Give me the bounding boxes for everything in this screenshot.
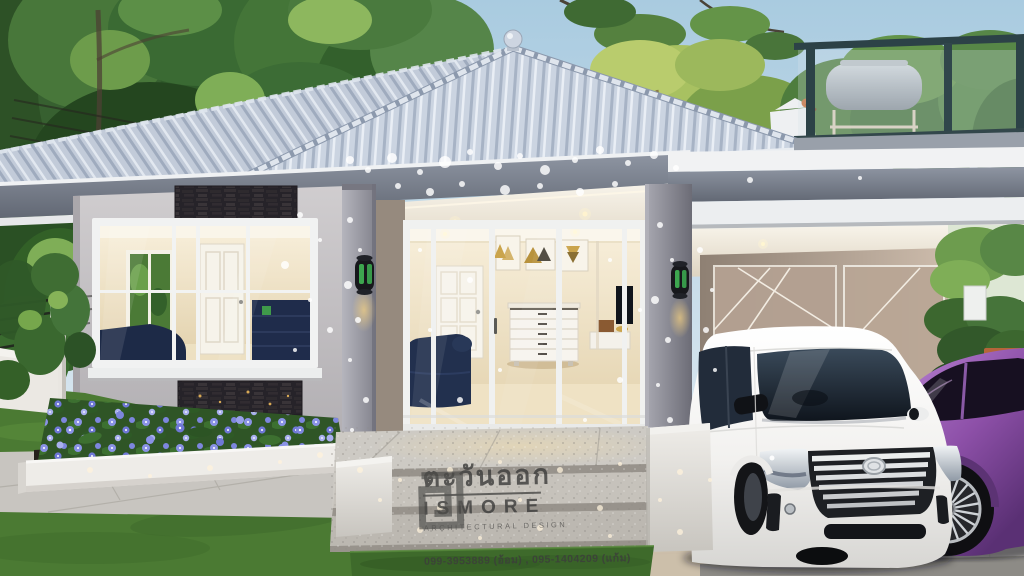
watermark: ตะวันออก ISMORE ARCHITECTURAL DESIGN xyxy=(413,460,567,533)
watermark-contacts: 099-3953889 (อ้อม) , 095-1404209 (แก้ม) xyxy=(424,549,631,570)
rooftop-deck xyxy=(770,34,1024,147)
interior-cabinet xyxy=(252,300,310,360)
door-handle xyxy=(494,318,497,334)
architectural-rendering-canvas: ตะวันออก ISMORE ARCHITECTURAL DESIGN 099… xyxy=(0,0,1024,576)
entrance-interior xyxy=(407,227,640,429)
step-sidewall-left xyxy=(336,456,392,537)
left-window xyxy=(88,218,322,381)
entrance-glass-door xyxy=(403,220,647,438)
window-sill xyxy=(88,368,322,378)
deck-railing-glass xyxy=(798,50,1024,138)
van-grille xyxy=(808,447,936,518)
